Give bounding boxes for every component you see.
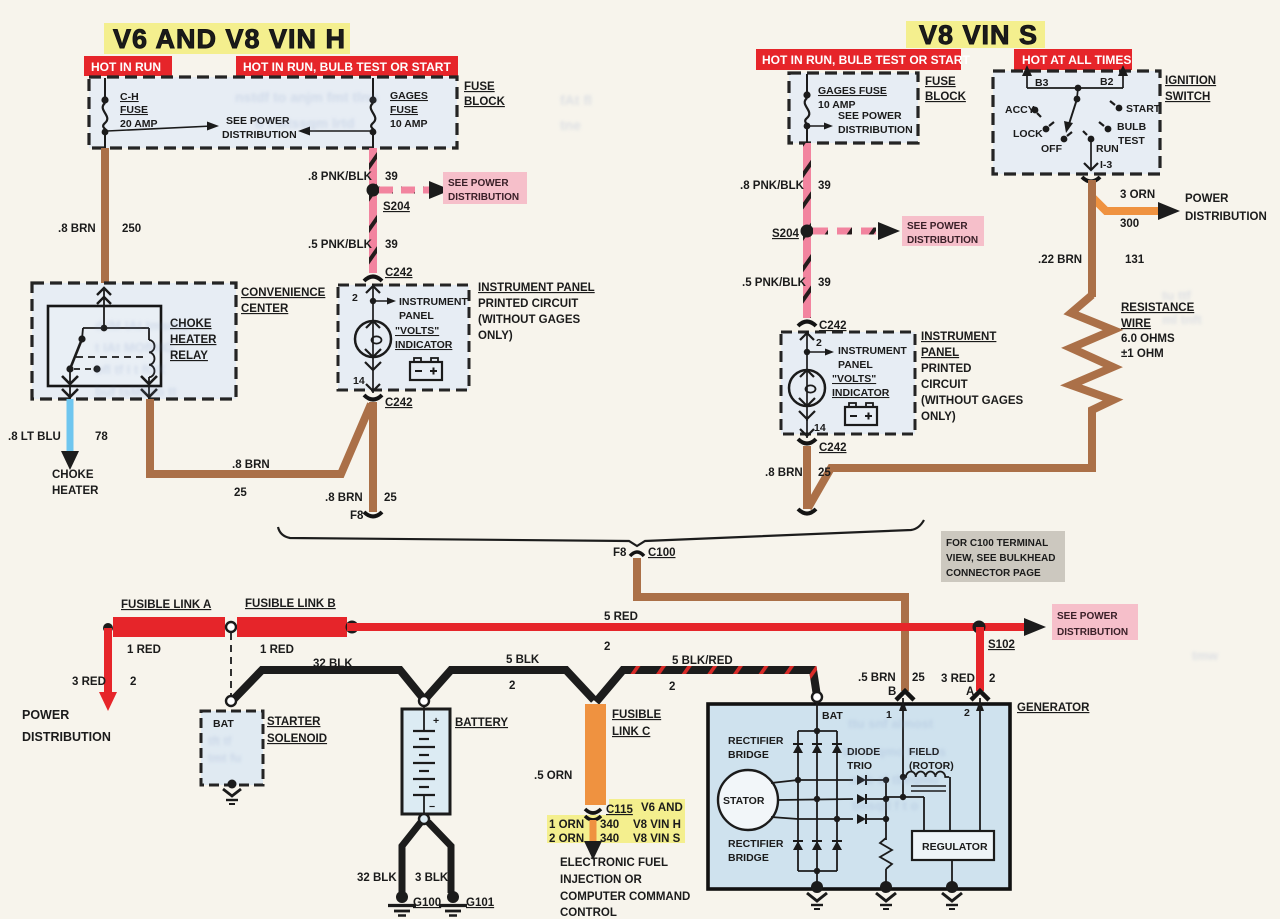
svg-text:BRIDGE: BRIDGE [728,749,769,761]
svg-text:RECTIFIER: RECTIFIER [728,735,784,747]
svg-text:DISTRIBUTION: DISTRIBUTION [448,192,519,203]
svg-text:.8 BRN: .8 BRN [765,467,803,479]
svg-text:.5 BRN: .5 BRN [858,672,896,684]
svg-text:.5 PNK/BLK: .5 PNK/BLK [742,277,807,289]
svg-text:C242: C242 [385,267,413,279]
svg-text:mtb al tbeqmo: mtb al tbeqmo [850,772,939,787]
svg-text:10 AMP: 10 AMP [390,118,428,130]
svg-text:(WITHOUT GAGES: (WITHOUT GAGES [478,314,581,326]
svg-text:ACCY: ACCY [1005,104,1035,116]
svg-text:HOT IN RUN, BULB TEST OR START: HOT IN RUN, BULB TEST OR START [243,60,451,74]
svg-text:BRIDGE: BRIDGE [728,852,769,864]
svg-text:INSTRUMENT PANEL: INSTRUMENT PANEL [478,282,595,294]
svg-text:1 RED: 1 RED [260,644,294,656]
svg-text:"VOLTS": "VOLTS" [832,373,876,385]
svg-text:CONTROL: CONTROL [560,907,617,919]
svg-text:bu snqmo to ans: bu snqmo to ans [842,744,946,759]
svg-text:FUSE: FUSE [120,104,148,116]
svg-text:G101: G101 [466,897,495,909]
svg-text:FUSIBLE LINK A: FUSIBLE LINK A [121,599,211,611]
svg-text:S204: S204 [772,228,799,240]
svg-text:.8 BRN: .8 BRN [58,223,96,235]
svg-text:FUSIBLE: FUSIBLE [612,709,662,721]
svg-text:BLOCK: BLOCK [464,96,506,108]
svg-text:SWITCH: SWITCH [1165,91,1210,103]
svg-text:INJECTION OR: INJECTION OR [560,874,642,886]
svg-text:IGNITION: IGNITION [1165,75,1216,87]
svg-text:nstdf to anjm fmt tlnu: nstdf to anjm fmt tlnu [235,89,378,105]
svg-text:−: − [429,801,435,813]
svg-text:.8 BRN: .8 BRN [232,459,270,471]
svg-text:FUSIBLE LINK B: FUSIBLE LINK B [245,598,336,610]
svg-text:LINK C: LINK C [612,726,650,738]
svg-text:TRIO: TRIO [847,760,872,772]
svg-text:SEE POWER: SEE POWER [448,178,509,189]
svg-text:C242: C242 [819,442,847,454]
svg-text:PRINTED: PRINTED [921,363,971,375]
svg-text:ttu snf almost: ttu snf almost [848,716,934,731]
svg-text:STATOR: STATOR [723,795,765,807]
svg-text:C242: C242 [385,397,413,409]
svg-text:25: 25 [234,487,247,499]
svg-text:.8 PNK/BLK: .8 PNK/BLK [308,171,373,183]
svg-text:CONNECTOR PAGE: CONNECTOR PAGE [946,568,1041,579]
svg-text:POWER: POWER [1185,193,1229,205]
svg-text:.5 ORN: .5 ORN [534,770,572,782]
svg-text:ONLY): ONLY) [921,411,956,423]
svg-text:2: 2 [989,673,995,685]
svg-text:GENERATOR: GENERATOR [1017,702,1090,714]
svg-text:131: 131 [1125,254,1145,266]
svg-text:G100: G100 [413,897,441,909]
svg-text:I-3: I-3 [1100,159,1112,171]
svg-text:"VOLTS": "VOLTS" [395,325,439,337]
svg-text:PRINTED CIRCUIT: PRINTED CIRCUIT [478,298,578,310]
svg-text:3 RED: 3 RED [941,673,975,685]
svg-text:2 ORN: 2 ORN [549,833,584,845]
svg-text:340: 340 [600,833,619,845]
svg-text:5 BLK: 5 BLK [506,654,540,666]
svg-text:BULB: BULB [1117,121,1147,133]
svg-text:3 ORN: 3 ORN [1120,189,1155,201]
svg-text:±1 OHM: ±1 OHM [1121,348,1164,360]
svg-text:340: 340 [600,819,619,831]
svg-text:39: 39 [385,171,398,183]
svg-text:2: 2 [669,681,675,693]
svg-text:B3: B3 [1035,77,1049,89]
svg-text:39: 39 [818,277,831,289]
svg-text:2: 2 [130,676,136,688]
svg-text:INSTRUMENT: INSTRUMENT [838,345,907,357]
svg-text:tmsqtl f t o: tmsqtl f t o [852,798,918,813]
svg-text:5 BLK/RED: 5 BLK/RED [672,655,733,667]
svg-text:V8 VIN H: V8 VIN H [633,819,681,831]
svg-text:BAT: BAT [822,710,843,722]
svg-text:FUSE: FUSE [925,76,956,88]
svg-text:DISTRIBUTION: DISTRIBUTION [838,124,913,136]
svg-text:C100: C100 [648,547,676,559]
svg-text:ONLY): ONLY) [478,330,513,342]
svg-text:INDICATOR: INDICATOR [395,339,453,351]
svg-text:.5 PNK/BLK: .5 PNK/BLK [308,239,373,251]
svg-text:RUN: RUN [1096,143,1119,155]
svg-text:POWER: POWER [22,708,69,722]
svg-text:2: 2 [352,292,358,304]
svg-text:V6 AND V8 VIN H: V6 AND V8 VIN H [113,24,346,54]
svg-text:.8 BRN: .8 BRN [325,492,363,504]
svg-text:14: 14 [353,375,365,387]
svg-text:300: 300 [1120,218,1139,230]
svg-text:RELAY: RELAY [170,350,208,362]
svg-text:tft tf: tft tf [208,734,232,748]
svg-text:CIRCUIT: CIRCUIT [921,379,968,391]
svg-text:OFF: OFF [1041,143,1063,155]
svg-text:1 RED: 1 RED [127,644,161,656]
svg-text:PANEL: PANEL [399,310,434,322]
svg-text:V8 VIN S: V8 VIN S [633,833,681,845]
svg-text:INDICATOR: INDICATOR [832,387,890,399]
svg-text:39: 39 [385,239,398,251]
svg-text:HOT IN RUN, BULB TEST OR START: HOT IN RUN, BULB TEST OR START [762,53,970,67]
svg-text:PANEL: PANEL [921,347,959,359]
svg-text:tne: tne [560,117,581,133]
svg-text:2: 2 [604,641,610,653]
svg-text:V8 VIN S: V8 VIN S [919,20,1038,50]
svg-text:RECTIFIER: RECTIFIER [728,838,784,850]
svg-text:DISTRIBUTION: DISTRIBUTION [907,235,978,246]
svg-text:buf tsMMfb tt: buf tsMMfb tt [95,384,177,399]
svg-text:GAGES: GAGES [390,90,428,102]
svg-text:.22 BRN: .22 BRN [1038,254,1082,266]
svg-text:HEATER: HEATER [170,334,217,346]
svg-text:tmw: tmw [1192,648,1219,663]
svg-text:LOCK: LOCK [1013,128,1043,140]
svg-text:250: 250 [122,223,141,235]
svg-text:.8 LT BLU: .8 LT BLU [8,431,61,443]
svg-text:DISTRIBUTION: DISTRIBUTION [1185,211,1267,223]
svg-text:25: 25 [912,672,925,684]
svg-text:39: 39 [818,180,831,192]
svg-text:d IM IAt tmsdtu: d IM IAt tmsdtu [95,318,189,333]
svg-text:SOLENOID: SOLENOID [267,733,327,745]
svg-text:SEE POWER: SEE POWER [838,110,902,122]
svg-text:PANEL: PANEL [838,359,873,371]
svg-text:ml tnft: ml tnft [1162,312,1202,327]
svg-text:F8: F8 [350,510,364,522]
svg-text:fAt fl: fAt fl [560,92,592,108]
svg-text:b t wtssqm lrtd: b t wtssqm lrtd [255,115,355,131]
svg-text:START: START [1126,103,1161,115]
svg-text:32 BLK: 32 BLK [357,872,397,884]
svg-text:STARTER: STARTER [267,716,321,728]
svg-text:WIRE: WIRE [1121,318,1151,330]
svg-text:HEATER: HEATER [52,485,99,497]
svg-text:BAT: BAT [213,718,234,730]
svg-text:t IAt MOfIMG: t IAt MOfIMG [95,340,174,355]
svg-text:COMPUTER COMMAND: COMPUTER COMMAND [560,891,690,903]
svg-text:FUSE: FUSE [390,104,418,116]
svg-text:B2: B2 [1100,76,1114,88]
svg-text:F8: F8 [613,547,627,559]
svg-text:S204: S204 [383,201,410,213]
svg-text:6.0 OHMS: 6.0 OHMS [1121,333,1175,345]
svg-text:HOT AT ALL TIMES: HOT AT ALL TIMES [1022,53,1131,67]
svg-text:C-H: C-H [120,91,139,103]
svg-text:2: 2 [509,680,515,692]
svg-text:HOT IN RUN: HOT IN RUN [91,60,161,74]
svg-text:25: 25 [818,467,831,479]
svg-text:14: 14 [814,422,826,434]
svg-text:INSTRUMENT: INSTRUMENT [921,331,996,343]
svg-text:1 ORN: 1 ORN [549,819,584,831]
svg-text:TEST: TEST [1118,135,1145,147]
svg-text:DISTRIBUTION: DISTRIBUTION [22,730,111,744]
svg-text:BATTERY: BATTERY [455,717,508,729]
svg-text:S102: S102 [988,639,1015,651]
svg-text:FOR C100 TERMINAL: FOR C100 TERMINAL [946,538,1048,549]
svg-text:78: 78 [95,431,108,443]
svg-text:SEE POWER: SEE POWER [1057,611,1118,622]
svg-text:(WITHOUT GAGES: (WITHOUT GAGES [921,395,1024,407]
svg-text:+: + [433,715,439,727]
svg-text:32 BLK: 32 BLK [313,658,353,670]
svg-text:25: 25 [384,492,397,504]
svg-text:(ROTOR): (ROTOR) [909,760,954,772]
svg-text:CENTER: CENTER [241,303,289,315]
svg-text:DISTRIBUTION: DISTRIBUTION [1057,627,1128,638]
svg-text:REGULATOR: REGULATOR [922,841,988,853]
svg-text:bfl tf I t fOX: bfl tf I t fOX [95,362,165,377]
svg-text:.8 PNK/BLK: .8 PNK/BLK [740,180,805,192]
svg-text:GAGES FUSE: GAGES FUSE [818,85,887,97]
svg-text:VIEW, SEE BULKHEAD: VIEW, SEE BULKHEAD [946,553,1055,564]
svg-text:5 RED: 5 RED [604,611,638,623]
svg-text:tu ttf: tu ttf [1162,288,1192,303]
svg-text:tmt fu: tmt fu [208,751,241,765]
svg-text:CHOKE: CHOKE [52,469,94,481]
svg-text:3 BLK: 3 BLK [415,872,449,884]
svg-text:C242: C242 [819,320,847,332]
svg-text:ELECTRONIC FUEL: ELECTRONIC FUEL [560,857,668,869]
svg-text:SEE POWER: SEE POWER [907,221,968,232]
svg-text:C115: C115 [606,804,633,816]
svg-text:V6 AND: V6 AND [641,802,683,814]
svg-text:INSTRUMENT: INSTRUMENT [399,296,468,308]
svg-text:3 RED: 3 RED [72,676,106,688]
svg-text:BLOCK: BLOCK [925,91,967,103]
svg-text:CONVENIENCE: CONVENIENCE [241,287,326,299]
svg-text:B: B [888,686,896,698]
svg-text:2: 2 [964,707,970,719]
svg-text:FUSE: FUSE [464,81,495,93]
svg-text:2: 2 [816,337,822,349]
